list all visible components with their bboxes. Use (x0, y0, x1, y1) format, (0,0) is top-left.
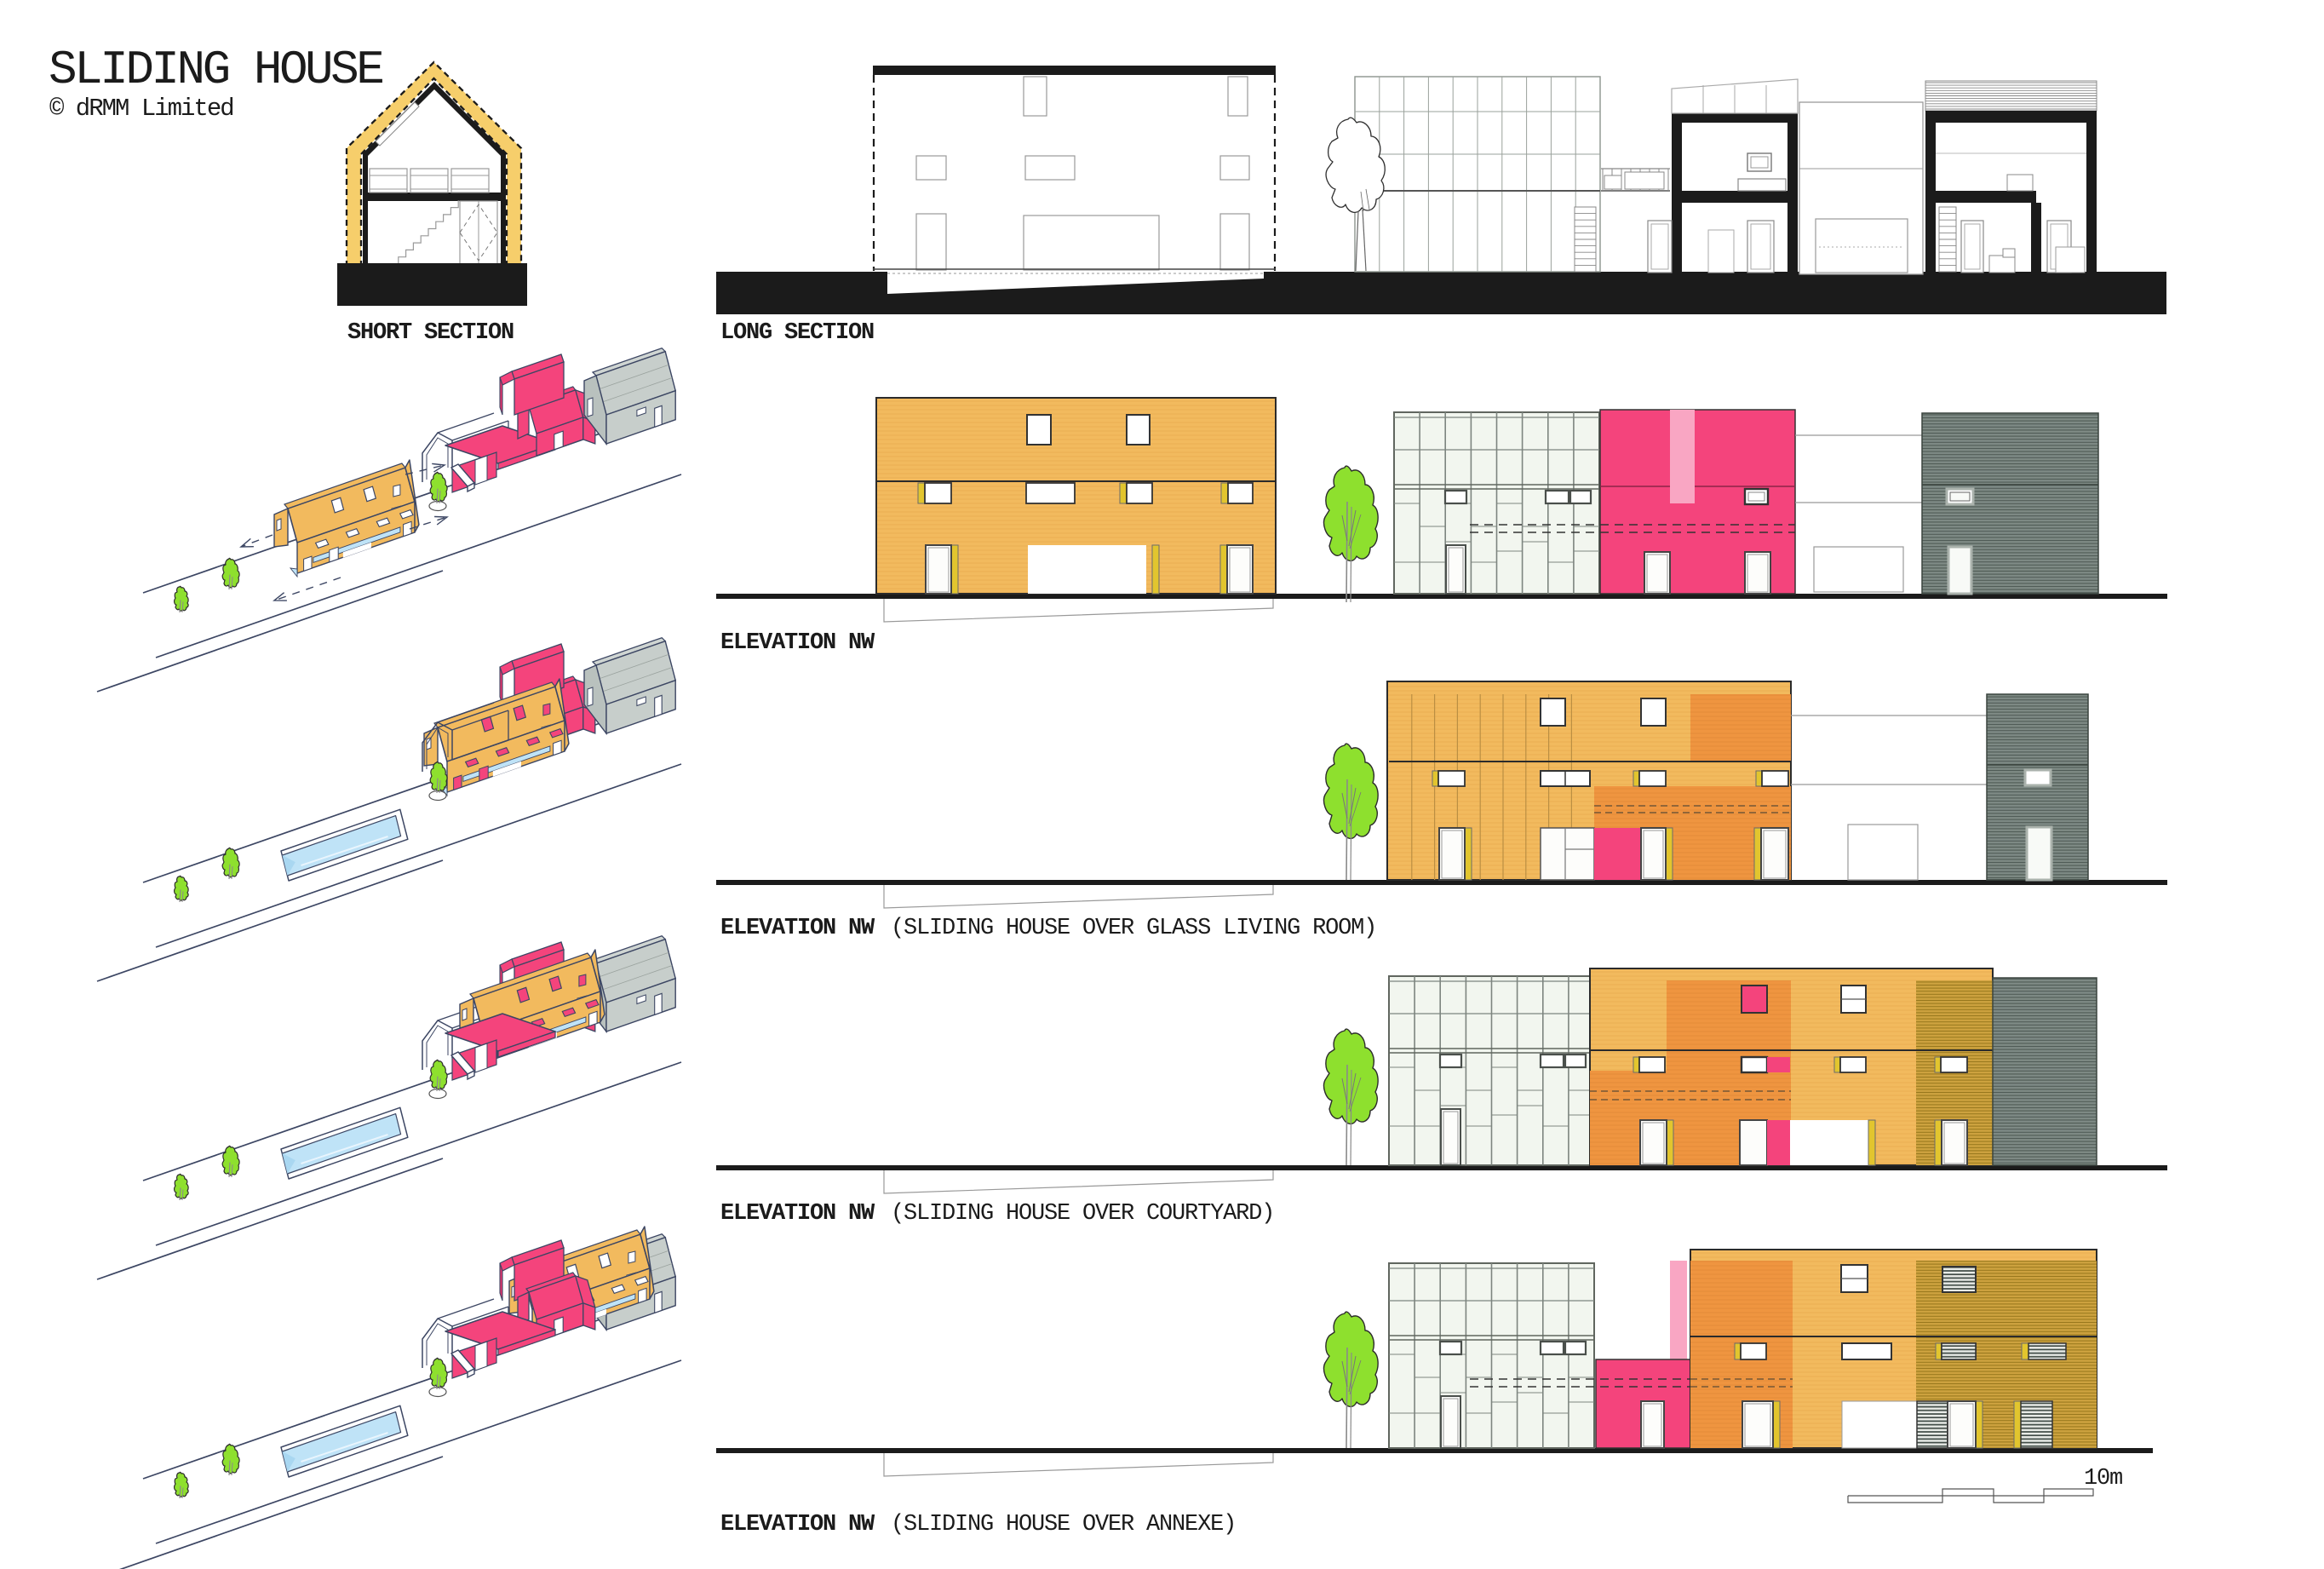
svg-text:ELEVATION NW: ELEVATION NW (720, 1201, 875, 1227)
svg-text:(SLIDING HOUSE OVER GLASS LIVI: (SLIDING HOUSE OVER GLASS LIVING ROOM) (891, 916, 1376, 941)
svg-text:ELEVATION NW: ELEVATION NW (720, 916, 875, 941)
svg-text:SHORT SECTION: SHORT SECTION (347, 320, 514, 346)
svg-text:© dRMM Limited: © dRMM Limited (49, 95, 233, 123)
svg-text:(SLIDING HOUSE OVER ANNEXE): (SLIDING HOUSE OVER ANNEXE) (891, 1512, 1236, 1537)
svg-text:ELEVATION NW: ELEVATION NW (720, 630, 875, 656)
svg-text:10m: 10m (2084, 1466, 2122, 1491)
svg-text:(SLIDING HOUSE OVER COURTYARD): (SLIDING HOUSE OVER COURTYARD) (891, 1201, 1274, 1227)
svg-text:LONG SECTION: LONG SECTION (720, 320, 874, 346)
svg-text:SLIDING HOUSE: SLIDING HOUSE (49, 43, 382, 97)
svg-text:ELEVATION NW: ELEVATION NW (720, 1512, 875, 1537)
